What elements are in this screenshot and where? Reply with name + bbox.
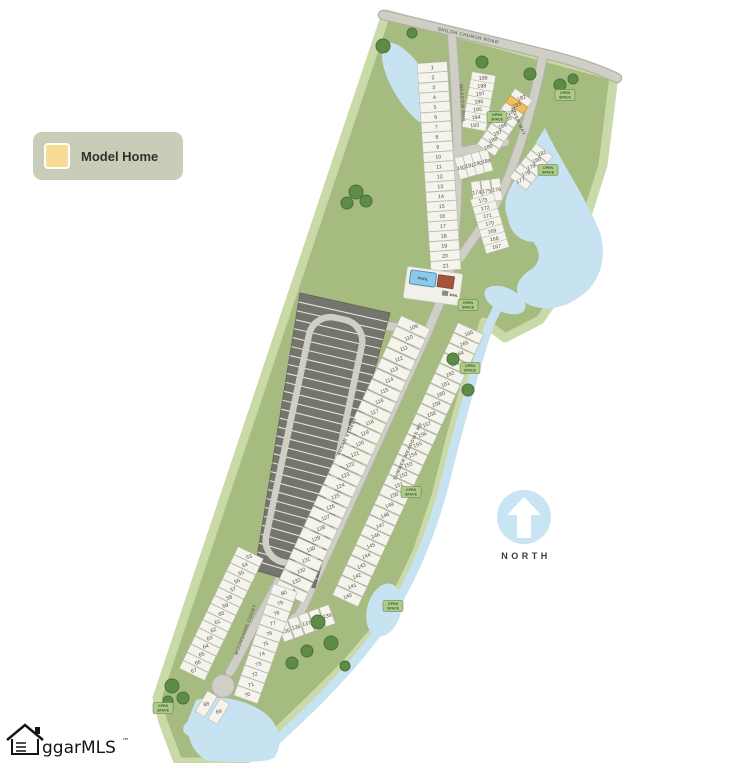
lot-number: 14 — [438, 194, 444, 200]
tree-icon — [341, 197, 353, 209]
svg-text:SPACE: SPACE — [464, 368, 477, 372]
house-icon — [7, 725, 43, 754]
legend: Model Home — [33, 132, 183, 180]
tree-icon — [286, 657, 298, 669]
lot-number: 19 — [441, 243, 447, 249]
open-space-label: OPENSPACE — [487, 112, 507, 123]
lot-number: 16 — [439, 214, 445, 220]
tree-icon — [462, 384, 474, 396]
lot-number: 10 — [435, 154, 441, 160]
site-plan-page: 1234567891011121314151617181920211991981… — [0, 0, 747, 763]
tree-icon — [360, 195, 372, 207]
watermark-tm: ™ — [122, 737, 129, 745]
svg-text:SPACE: SPACE — [491, 117, 504, 121]
tree-icon — [340, 661, 350, 671]
north-compass: NORTH — [497, 490, 551, 561]
lot-number: 9 — [436, 144, 439, 150]
lot-number: 2 — [431, 75, 434, 81]
tree-icon — [324, 636, 338, 650]
tree-icon — [524, 68, 536, 80]
svg-text:SPACE: SPACE — [387, 606, 400, 610]
lot-number: 193 — [470, 123, 479, 130]
open-space-label: OPENSPACE — [538, 165, 558, 176]
watermark-text: ggarMLS — [42, 738, 116, 758]
open-space-label: OPENSPACE — [458, 300, 478, 311]
tree-icon — [165, 679, 179, 693]
site-plan-map: 1234567891011121314151617181920211991981… — [0, 0, 747, 763]
legend-label: Model Home — [81, 149, 158, 164]
tree-icon — [301, 645, 313, 657]
lot-number: 11 — [436, 164, 442, 170]
lot-number: 6 — [434, 115, 437, 121]
north-label: NORTH — [501, 551, 551, 561]
tree-icon — [349, 185, 363, 199]
svg-text:SPACE: SPACE — [157, 708, 170, 712]
tree-icon — [177, 692, 189, 704]
tree-icon — [447, 353, 459, 365]
cul-de-sac — [212, 675, 235, 698]
mailbox-icon — [442, 290, 449, 296]
lot-number: 21 — [443, 263, 449, 269]
lot-number: 8 — [435, 135, 438, 141]
lot-number: 1 — [431, 65, 434, 71]
lot-number: 15 — [439, 204, 445, 210]
open-space-label: OPENSPACE — [555, 90, 575, 101]
lot-number: 4 — [433, 95, 436, 101]
tree-icon — [476, 56, 488, 68]
tree-icon — [376, 39, 390, 53]
lot-number: 7 — [435, 125, 438, 131]
lot-number: 12 — [437, 174, 443, 180]
open-space-label: OPENSPACE — [153, 703, 173, 714]
svg-text:SPACE: SPACE — [559, 95, 572, 99]
svg-text:SPACE: SPACE — [462, 305, 475, 309]
tree-icon — [311, 615, 325, 629]
tree-icon — [568, 74, 578, 84]
lot-number: 18 — [441, 233, 447, 239]
lot-number: 13 — [437, 184, 443, 190]
watermark-logo: ggarMLS ™ — [7, 725, 129, 758]
lot-number: 5 — [433, 105, 436, 111]
svg-text:SPACE: SPACE — [405, 492, 418, 496]
tree-icon — [554, 79, 566, 91]
open-space-label: OPENSPACE — [383, 601, 403, 612]
open-space-label: OPENSPACE — [401, 487, 421, 498]
model-home-swatch — [45, 144, 69, 168]
svg-text:SPACE: SPACE — [542, 170, 555, 174]
lot-number: 3 — [432, 85, 435, 91]
clubhouse — [437, 275, 455, 289]
lot-number: 17 — [440, 224, 446, 230]
lot-number: 174 — [472, 190, 481, 197]
tree-icon — [407, 28, 417, 38]
lot-number: 189 — [482, 158, 492, 165]
lot-number: 20 — [442, 253, 448, 259]
open-space-label: OPENSPACE — [460, 363, 480, 374]
